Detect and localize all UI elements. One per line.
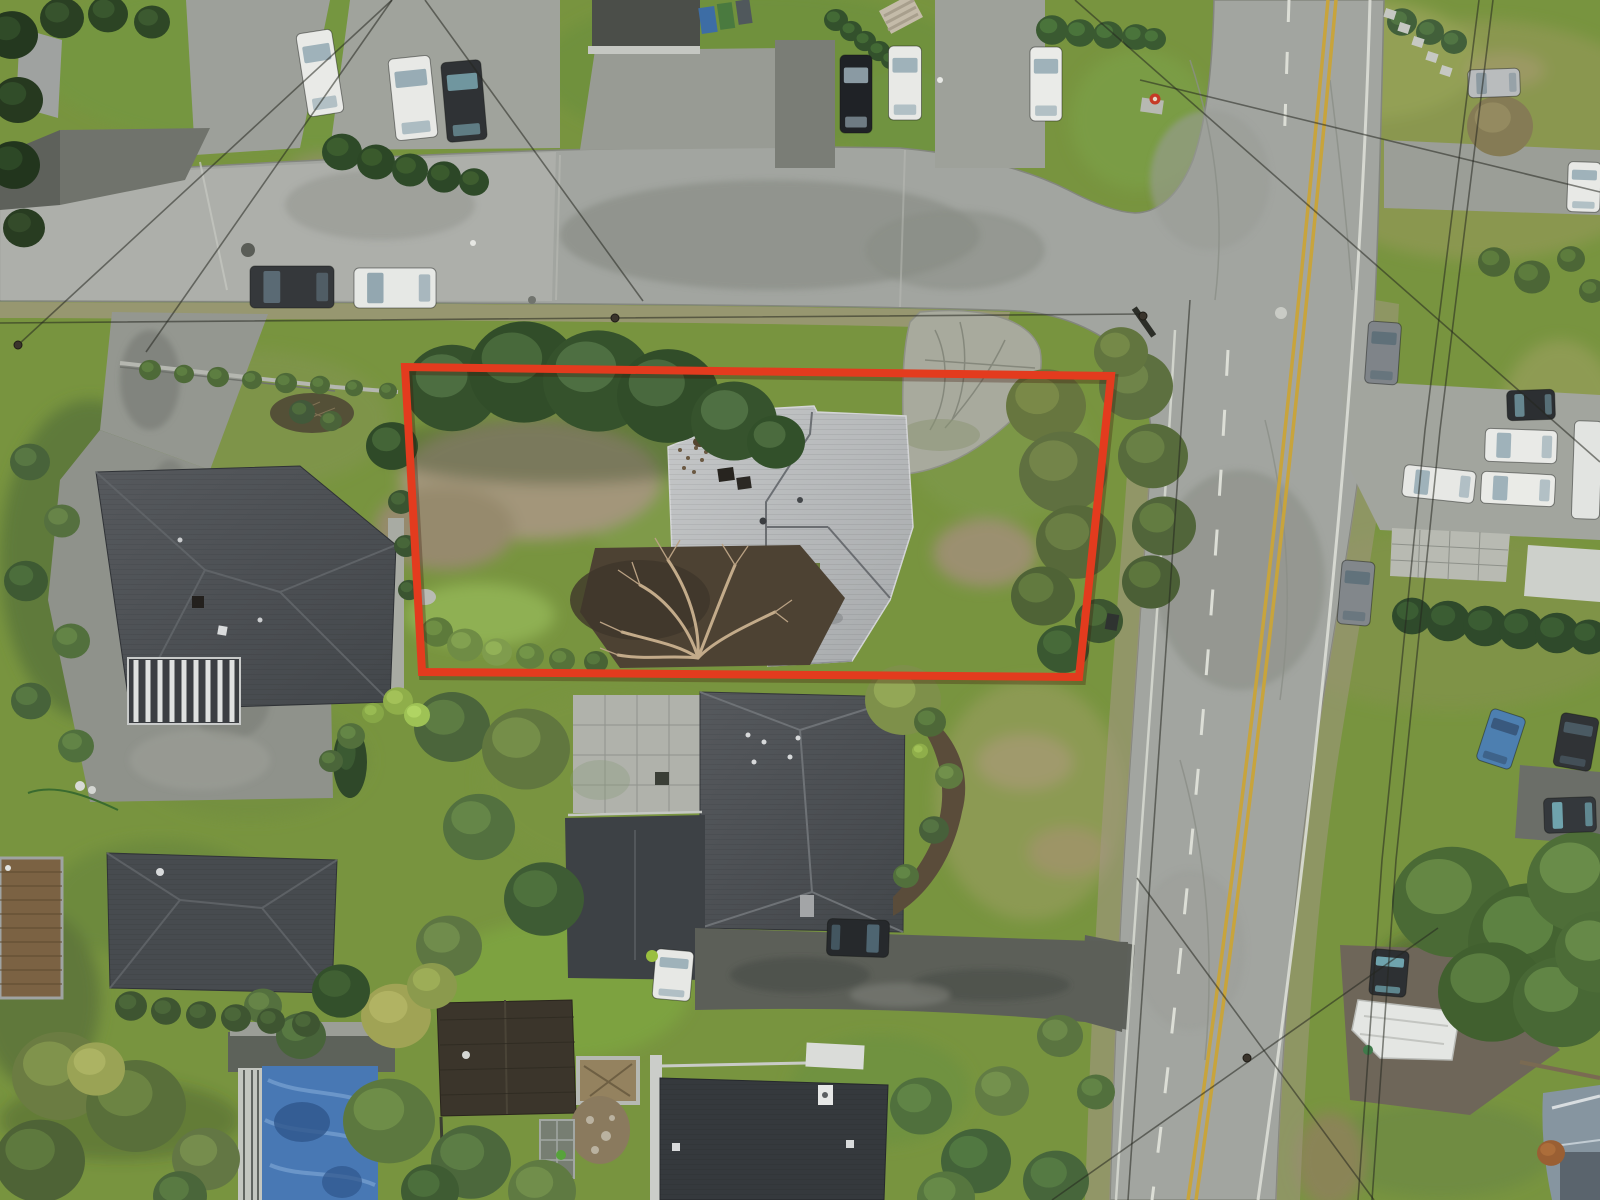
skylight [846, 1140, 854, 1148]
tree-highlight [1419, 22, 1434, 35]
tree-highlight [827, 11, 840, 22]
skylight [672, 1143, 680, 1151]
sedan-white-2-windshield [892, 58, 917, 73]
tree-highlight [322, 752, 335, 763]
tree-highlight [492, 717, 540, 757]
car-white-east-2-windshield [1413, 469, 1430, 495]
tree-highlight [48, 508, 68, 525]
tree-highlight [857, 33, 869, 43]
tree-highlight [278, 375, 290, 385]
tree-highlight [347, 382, 357, 390]
suv-dark-east-windshield [1514, 394, 1524, 417]
tree-highlight [180, 1135, 217, 1166]
tree-highlight [1468, 610, 1492, 630]
south-house-chimney [800, 895, 814, 917]
tree-highlight [922, 819, 939, 833]
planter-white-1 [75, 781, 85, 791]
car-white-ne-windshield [1572, 170, 1597, 181]
chimney [736, 476, 752, 490]
suv-black-driveway [826, 918, 889, 957]
tree-highlight [416, 354, 468, 397]
car-white-ne-rear-window [1572, 201, 1595, 209]
tree-highlight [431, 165, 450, 181]
tree-highlight [56, 627, 77, 644]
tree-highlight [391, 493, 405, 505]
tree-highlight [1406, 859, 1472, 914]
tree-highlight [396, 157, 416, 174]
driveway-north-dark [775, 40, 835, 168]
tree-highlight [386, 690, 403, 704]
tree-highlight [914, 745, 923, 752]
car-white-east-3 [1480, 471, 1556, 507]
tree-highlight [938, 766, 953, 779]
utility-pole [611, 314, 619, 322]
tree-highlight [340, 726, 355, 739]
tree-highlight [45, 2, 69, 22]
tree-highlight [1431, 605, 1455, 625]
roof-vent [797, 497, 803, 503]
fire-hydrant-cap [1153, 97, 1157, 101]
tree-highlight [451, 632, 471, 649]
tree-highlight [224, 1007, 241, 1021]
white-trailer [805, 1042, 864, 1069]
sedan-white-2 [889, 46, 922, 120]
car-gray-road-1-windshield [1371, 331, 1397, 345]
car-white-east-3-rear-window [1539, 479, 1550, 501]
utility-pole [14, 341, 22, 349]
tree-highlight [1081, 1078, 1102, 1095]
car-gray-road-1 [1364, 321, 1401, 385]
car-gray-road-2 [1337, 560, 1375, 627]
bottomleft-roof-texture [107, 853, 337, 993]
tree-highlight [1068, 22, 1085, 36]
car-white-east-3-windshield [1492, 476, 1508, 501]
utility-pole [1139, 312, 1147, 320]
wood-deck [0, 858, 62, 998]
bottomcenter-roof-texture [660, 1078, 888, 1200]
tree-highlight [451, 801, 491, 834]
tree-highlight [1126, 431, 1165, 463]
car-white-street-windshield [367, 273, 383, 303]
tree-highlight [260, 1011, 275, 1024]
skylight [156, 868, 164, 876]
tree-highlight [1540, 617, 1564, 637]
tree-highlight [1018, 573, 1053, 602]
suv-dark-1 [441, 59, 488, 142]
tree-highlight [292, 403, 306, 415]
tarp-sag [274, 1102, 330, 1142]
tree-highlight [248, 992, 269, 1009]
tree-highlight [119, 995, 137, 1010]
tree-highlight [843, 23, 855, 33]
minivan-dark-se [1543, 797, 1596, 834]
driveway-east-2 [1340, 380, 1600, 540]
tree-highlight [1040, 19, 1058, 34]
tree-highlight [1518, 264, 1538, 281]
driveway-north-4 [935, 0, 1045, 168]
tree-highlight [5, 1129, 55, 1170]
suv-dark-east-rear-window [1545, 394, 1552, 415]
tree-highlight [425, 621, 443, 636]
car-white-ne [1567, 161, 1600, 212]
car-gray-road-2-windshield [1344, 570, 1370, 585]
tree-highlight [871, 43, 883, 53]
car-white-east-2 [1402, 464, 1477, 503]
tree-highlight [62, 733, 82, 750]
tree-highlight [142, 362, 154, 372]
tree-highlight [401, 582, 413, 592]
tree-highlight [327, 138, 349, 156]
tree-highlight [1129, 561, 1161, 588]
sedan-white-2-rear-window [894, 104, 916, 114]
van-white-1-windshield [394, 69, 427, 89]
tree-highlight [1125, 27, 1140, 40]
chimney [717, 467, 735, 482]
tree-highlight [1043, 630, 1072, 654]
tree-highlight [1042, 1019, 1067, 1040]
tree-highlight [462, 171, 479, 185]
tree-highlight [16, 687, 38, 705]
suv-dark-1-windshield [446, 73, 478, 92]
tree-highlight [1139, 503, 1174, 532]
car-white-street [354, 268, 436, 308]
tree-highlight [1029, 440, 1077, 480]
tree-highlight [74, 1048, 106, 1075]
tree-highlight [244, 373, 255, 382]
tree-highlight [176, 367, 187, 376]
tree-highlight [424, 922, 460, 952]
pickup-dark-street [250, 266, 334, 308]
utility-pole [1243, 1054, 1251, 1062]
car-gray-road-1-rear-window [1370, 370, 1393, 380]
tree-highlight [1100, 333, 1130, 358]
roof-vent [178, 538, 183, 543]
sedan-black-1-rear-window [845, 117, 867, 128]
trailer-white-east [1571, 421, 1600, 520]
left-house-pergola [128, 658, 240, 724]
tarp-sag [322, 1166, 362, 1198]
tree-highlight [397, 537, 410, 548]
tree-highlight [154, 1000, 171, 1014]
minivan-dark-se-rear-window [1585, 802, 1593, 826]
tree-highlight [369, 991, 408, 1023]
car-white-3-rear-window [1035, 105, 1057, 115]
tree-highlight [1450, 953, 1509, 1003]
patio-planter [655, 772, 669, 785]
sedan-black-1-windshield [844, 67, 868, 83]
tree-highlight [1574, 623, 1595, 640]
sedan-white-east-1-windshield [1496, 433, 1511, 459]
tree-highlight [413, 968, 441, 991]
tree-highlight [897, 1084, 931, 1113]
flagstone-moss [900, 419, 980, 451]
sedan-white-east-1 [1484, 428, 1557, 463]
minivan-dark-se-windshield [1552, 802, 1563, 829]
tree-highlight [138, 9, 158, 26]
manhole-cover [241, 243, 255, 257]
trash-speck-1 [937, 77, 943, 83]
tree-highlight [8, 213, 31, 232]
tree-highlight [949, 1136, 988, 1168]
car-white-3-windshield [1034, 59, 1058, 74]
tree-highlight [552, 651, 566, 663]
aerial-photo [0, 0, 1600, 1200]
tree-highlight [587, 653, 600, 664]
tree-highlight [1540, 843, 1600, 894]
tree-highlight [93, 0, 115, 18]
tree-highlight [372, 427, 401, 451]
sedan-black-1 [840, 55, 872, 133]
tree-highlight [365, 705, 377, 715]
tree-highlight [896, 867, 910, 879]
driveway-north-3 [580, 48, 790, 150]
shed-vent [462, 1051, 470, 1059]
suv-black-driveway-windshield [866, 924, 879, 953]
tree-highlight [440, 1133, 484, 1170]
tree-highlight [1482, 251, 1500, 266]
tree-highlight [513, 870, 557, 907]
skylight [217, 625, 227, 635]
tree-highlight [1145, 30, 1158, 41]
van-white-1 [388, 55, 438, 141]
tree-highlight [981, 1072, 1011, 1097]
bin-green-2 [556, 1150, 566, 1160]
planter-curb [588, 46, 700, 54]
manhole-small [528, 296, 536, 304]
aerial-photo-canvas [0, 0, 1600, 1200]
roof-dark-section [1560, 1152, 1600, 1200]
tree-highlight [210, 369, 222, 379]
debris-area [570, 1096, 630, 1164]
tree-highlight [918, 711, 936, 726]
roof-vent [258, 618, 263, 623]
tree-highlight [1582, 282, 1596, 294]
trash-speck-2 [470, 240, 476, 246]
sedan-white-east-1-rear-window [1541, 436, 1552, 459]
planter-white-2 [88, 786, 96, 794]
car-white-street-rear-window [419, 274, 430, 301]
car-silver-ne-rear-window [1509, 73, 1517, 92]
tree-highlight [312, 378, 323, 387]
tree-highlight [408, 1170, 440, 1197]
tree-highlight [754, 421, 786, 448]
tree-highlight [1540, 1143, 1555, 1156]
tree-highlight [1045, 513, 1089, 550]
tree-highlight [319, 970, 351, 997]
tree-highlight [361, 148, 382, 165]
pickup-dark-street-windshield [263, 271, 280, 303]
tree-highlight [9, 565, 33, 585]
tree-highlight [519, 646, 534, 659]
patio-moss [570, 760, 630, 800]
tree-highlight [407, 706, 421, 718]
roof-vent [760, 518, 767, 525]
tree-highlight [323, 413, 335, 423]
tree-highlight [381, 385, 391, 393]
tree-highlight [295, 1014, 310, 1027]
chimney [192, 596, 204, 608]
tree-highlight [516, 1167, 553, 1198]
tree-highlight [1444, 33, 1458, 45]
car-silver-ne [1468, 68, 1521, 98]
tree-highlight [701, 390, 748, 430]
tree-highlight [1504, 613, 1528, 633]
bin-lime [646, 950, 658, 962]
tree-highlight [485, 641, 502, 655]
tree-highlight [1031, 1157, 1067, 1187]
tree-highlight [189, 1004, 206, 1018]
carport-roof [1524, 545, 1600, 602]
pickup-dark-street-rear-window [316, 273, 328, 302]
tree-highlight [354, 1088, 405, 1130]
trailer-white-east-body [1571, 421, 1600, 520]
suv-black-driveway-rear-window [831, 924, 841, 949]
planter-wall [592, 0, 700, 48]
van-white-south [652, 948, 694, 1001]
suv-dark-1-rear-window [452, 123, 480, 137]
chimney-flue [822, 1092, 828, 1098]
tree-highlight [15, 448, 37, 466]
car-white-3 [1030, 47, 1062, 121]
manhole-ring [1275, 307, 1287, 319]
tree-highlight [0, 82, 26, 105]
tree-highlight [1560, 249, 1575, 262]
